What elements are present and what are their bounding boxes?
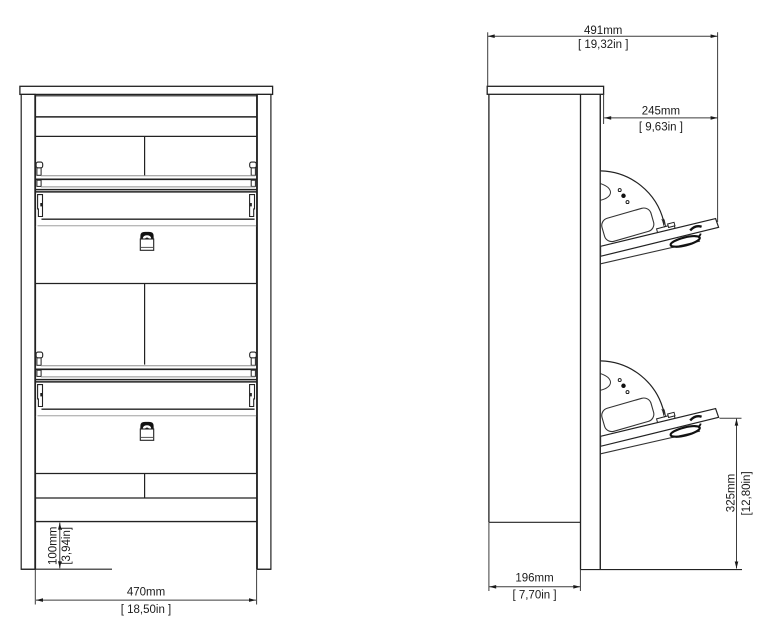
- svg-text:245mm: 245mm: [642, 106, 680, 118]
- svg-text:325mm: 325mm: [726, 474, 738, 512]
- svg-text:[12,80in]: [12,80in]: [741, 471, 753, 515]
- svg-text:[ 7,70in ]: [ 7,70in ]: [512, 590, 556, 602]
- svg-text:196mm: 196mm: [515, 572, 553, 584]
- svg-text:[3,94in]: [3,94in]: [61, 527, 73, 565]
- svg-text:[ 9,63in ]: [ 9,63in ]: [639, 121, 683, 133]
- svg-text:[ 18,50in ]: [ 18,50in ]: [121, 604, 172, 616]
- svg-text:100mm: 100mm: [47, 527, 59, 565]
- svg-text:[ 19,32in ]: [ 19,32in ]: [578, 39, 629, 51]
- svg-text:491mm: 491mm: [584, 25, 622, 37]
- svg-text:470mm: 470mm: [127, 586, 165, 598]
